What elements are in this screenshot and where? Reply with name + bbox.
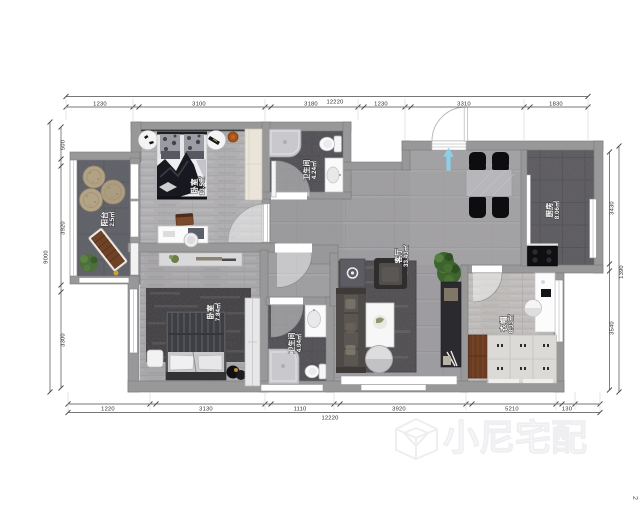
- svg-text:4.04㎡: 4.04㎡: [294, 333, 303, 352]
- svg-text:8.33㎡: 8.33㎡: [506, 314, 515, 333]
- svg-text:阳台: 阳台: [99, 211, 109, 226]
- svg-text:卫生间: 卫生间: [287, 333, 296, 354]
- svg-text:7.84㎡: 7.84㎡: [213, 302, 222, 321]
- svg-text:1220: 1220: [101, 407, 115, 413]
- svg-text:1110: 1110: [294, 407, 307, 413]
- svg-text:客厅: 客厅: [393, 248, 403, 264]
- svg-text:12220: 12220: [321, 416, 338, 422]
- svg-text:卧室: 卧室: [205, 304, 215, 319]
- svg-text:130: 130: [562, 407, 572, 413]
- svg-text:500: 500: [61, 140, 67, 150]
- svg-text:1390: 1390: [619, 265, 625, 279]
- svg-text:3100: 3100: [192, 102, 206, 108]
- svg-text:厨房: 厨房: [544, 202, 554, 217]
- svg-text:2: 2: [631, 496, 638, 500]
- svg-text:3430: 3430: [610, 201, 616, 215]
- svg-text:3920: 3920: [392, 407, 406, 413]
- svg-text:5210: 5210: [505, 407, 519, 413]
- svg-text:4.24㎡: 4.24㎡: [309, 160, 318, 179]
- svg-text:3130: 3130: [199, 407, 213, 413]
- svg-text:9000: 9000: [44, 250, 50, 264]
- svg-text:1230: 1230: [93, 102, 107, 108]
- svg-text:卫生间: 卫生间: [302, 160, 311, 181]
- svg-text:3180: 3180: [304, 102, 318, 108]
- svg-text:3920: 3920: [61, 221, 67, 235]
- svg-text:3310: 3310: [457, 102, 471, 108]
- svg-text:衣帽: 衣帽: [498, 316, 508, 331]
- svg-text:33.43㎡: 33.43㎡: [401, 244, 410, 267]
- svg-text:卧室: 卧室: [189, 178, 199, 193]
- svg-text:2.5㎡: 2.5㎡: [107, 211, 116, 227]
- svg-text:1230: 1230: [374, 102, 388, 108]
- svg-text:13.5㎡: 13.5㎡: [197, 176, 206, 195]
- svg-text:小尼宅配: 小尼宅配: [443, 417, 587, 458]
- svg-text:3540: 3540: [610, 321, 616, 335]
- svg-text:3300: 3300: [61, 333, 67, 347]
- svg-text:12220: 12220: [326, 100, 343, 106]
- svg-text:8.06㎡: 8.06㎡: [552, 200, 561, 219]
- svg-text:1830: 1830: [549, 102, 563, 108]
